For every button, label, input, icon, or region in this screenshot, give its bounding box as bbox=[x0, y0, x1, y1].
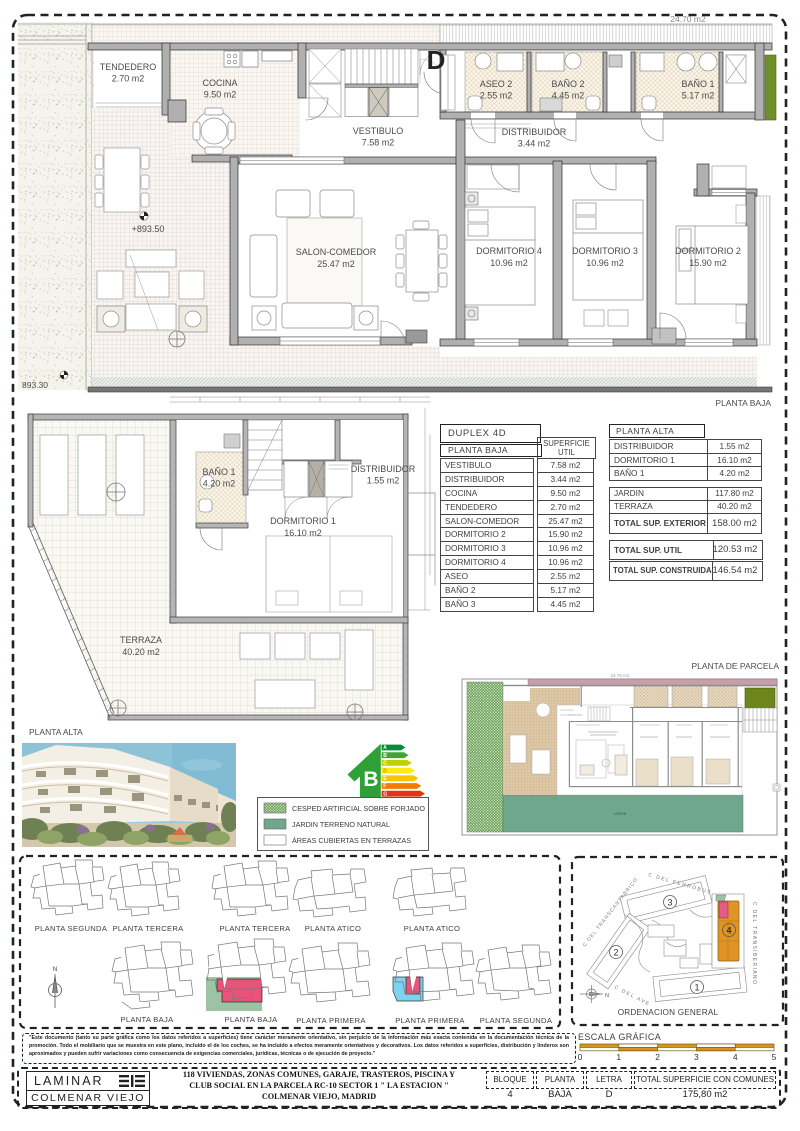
svg-text:C DEL AVE: C DEL AVE bbox=[613, 984, 651, 1007]
svg-text:4: 4 bbox=[726, 926, 731, 936]
svg-text:PLANTA DE PARCELA: PLANTA DE PARCELA bbox=[691, 661, 779, 671]
svg-text:ORDENACION GENERAL: ORDENACION GENERAL bbox=[618, 1008, 719, 1017]
svg-text:JARDIN: JARDIN bbox=[614, 812, 627, 816]
svg-text:3: 3 bbox=[667, 898, 672, 908]
svg-text:C DEL TRANSIBERIANO: C DEL TRANSIBERIANO bbox=[751, 902, 757, 985]
svg-text:2: 2 bbox=[613, 948, 618, 958]
svg-text:1: 1 bbox=[694, 983, 699, 993]
svg-text:ESCALA GRÁFICA: ESCALA GRÁFICA bbox=[578, 1032, 661, 1042]
svg-text:N: N bbox=[605, 993, 609, 999]
svg-text:24.76 m2: 24.76 m2 bbox=[611, 673, 630, 678]
svg-text:PLANTA ALTA: PLANTA ALTA bbox=[29, 727, 83, 737]
